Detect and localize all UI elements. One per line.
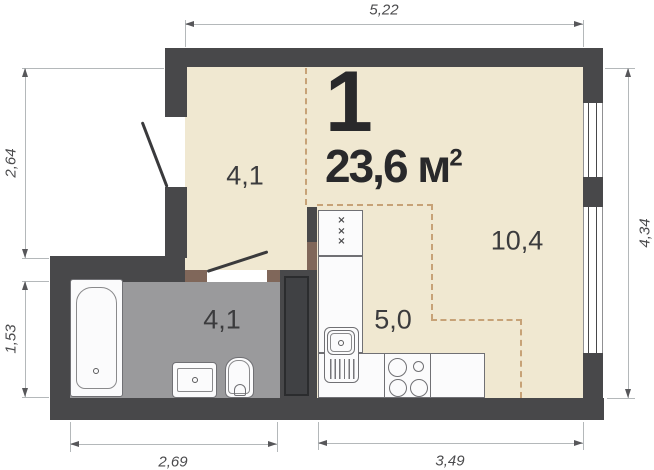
door-jamb-bathroom-right bbox=[267, 270, 280, 282]
dim-extension-line bbox=[605, 68, 635, 69]
vent-shaft bbox=[284, 276, 309, 396]
dim-arrow-icon bbox=[22, 388, 28, 397]
floor-plan: × × × 1 23,6 м2 4,1 10,4 5,0 4,1 bbox=[0, 0, 654, 470]
bathtub-drain-icon bbox=[93, 368, 99, 374]
zone-dashed-line bbox=[431, 204, 433, 320]
dim-line bbox=[318, 443, 583, 444]
fridge: × × × bbox=[318, 210, 363, 256]
zone-dashed-line bbox=[317, 204, 433, 206]
room-area-label-bathroom: 4,1 bbox=[203, 305, 241, 336]
window-glazing-line bbox=[596, 103, 598, 353]
washbasin bbox=[172, 362, 217, 398]
dim-line bbox=[25, 281, 26, 397]
window-glazing-line bbox=[588, 103, 590, 353]
unit-area-value: 23,6 bbox=[325, 140, 407, 192]
room-area-label-hall: 4,1 bbox=[226, 161, 264, 192]
stove-burner bbox=[410, 379, 428, 397]
dim-label-left-lower: 1,53 bbox=[3, 324, 20, 353]
dim-extension-line bbox=[70, 422, 71, 452]
wall-hall-kitchen bbox=[307, 207, 317, 242]
dim-arrow-icon bbox=[185, 21, 194, 27]
dim-arrow-icon bbox=[70, 441, 79, 447]
stove-burner bbox=[389, 379, 407, 397]
unit-area-sup: 2 bbox=[449, 145, 462, 172]
sink-faucet-icon bbox=[338, 340, 344, 346]
wall-bathroom-left bbox=[50, 256, 70, 420]
zone-dashed-line bbox=[431, 319, 522, 321]
zone-dashed-line bbox=[305, 68, 307, 205]
kitchen-sink bbox=[324, 327, 359, 383]
wall-bottom bbox=[50, 398, 604, 420]
dim-line bbox=[70, 444, 277, 445]
stove bbox=[384, 353, 431, 398]
dim-arrow-icon bbox=[268, 441, 277, 447]
dim-extension-line bbox=[22, 68, 164, 69]
dim-arrow-icon bbox=[22, 68, 28, 77]
unit-area-unit: м bbox=[407, 140, 450, 192]
unit-type-label: 1 bbox=[325, 59, 371, 145]
dim-extension-line bbox=[277, 422, 278, 452]
dim-arrow-icon bbox=[318, 440, 327, 446]
wall-left-upper bbox=[165, 48, 187, 117]
dim-arrow-icon bbox=[625, 68, 631, 77]
unit-area-label: 23,6 м2 bbox=[325, 143, 463, 189]
window-right bbox=[583, 103, 603, 353]
dim-label-bottom-left: 2,69 bbox=[158, 454, 187, 470]
toilet-seat-arc bbox=[234, 384, 246, 396]
dim-extension-line bbox=[318, 422, 319, 450]
wall-left-mid bbox=[165, 187, 187, 258]
room-area-label-kitchen: 5,0 bbox=[374, 305, 412, 336]
dim-line bbox=[628, 68, 629, 398]
sink-drainboard bbox=[330, 359, 355, 379]
window-mullion bbox=[583, 177, 603, 207]
dim-label-right: 4,34 bbox=[637, 218, 654, 247]
dim-extension-line bbox=[583, 422, 584, 450]
stove-burner bbox=[413, 361, 424, 372]
dim-label-left-upper: 2,64 bbox=[3, 148, 20, 177]
door-jamb-bathroom-left bbox=[185, 270, 207, 282]
dim-arrow-icon bbox=[22, 281, 28, 290]
fridge-icon: × × × bbox=[319, 216, 364, 248]
stove-burner bbox=[388, 358, 407, 377]
wall-top bbox=[165, 48, 603, 67]
dim-label-top: 5,22 bbox=[369, 2, 398, 19]
dim-arrow-icon bbox=[574, 440, 583, 446]
toilet bbox=[225, 357, 254, 398]
dim-line bbox=[185, 24, 583, 25]
door-jamb-kitchen-wall bbox=[307, 242, 317, 270]
dim-line bbox=[25, 68, 26, 258]
dim-arrow-icon bbox=[625, 389, 631, 398]
room-area-label-living: 10,4 bbox=[491, 226, 544, 257]
dim-extension-line bbox=[607, 398, 635, 399]
dim-arrow-icon bbox=[574, 21, 583, 27]
wall-right-upper bbox=[583, 48, 603, 103]
dim-label-bottom-right: 3,49 bbox=[435, 453, 464, 470]
zone-dashed-line bbox=[520, 319, 522, 398]
dim-arrow-icon bbox=[22, 249, 28, 258]
washbasin-drain-icon bbox=[192, 377, 198, 383]
entry-door-leaf bbox=[141, 121, 169, 187]
bathtub bbox=[70, 279, 123, 397]
